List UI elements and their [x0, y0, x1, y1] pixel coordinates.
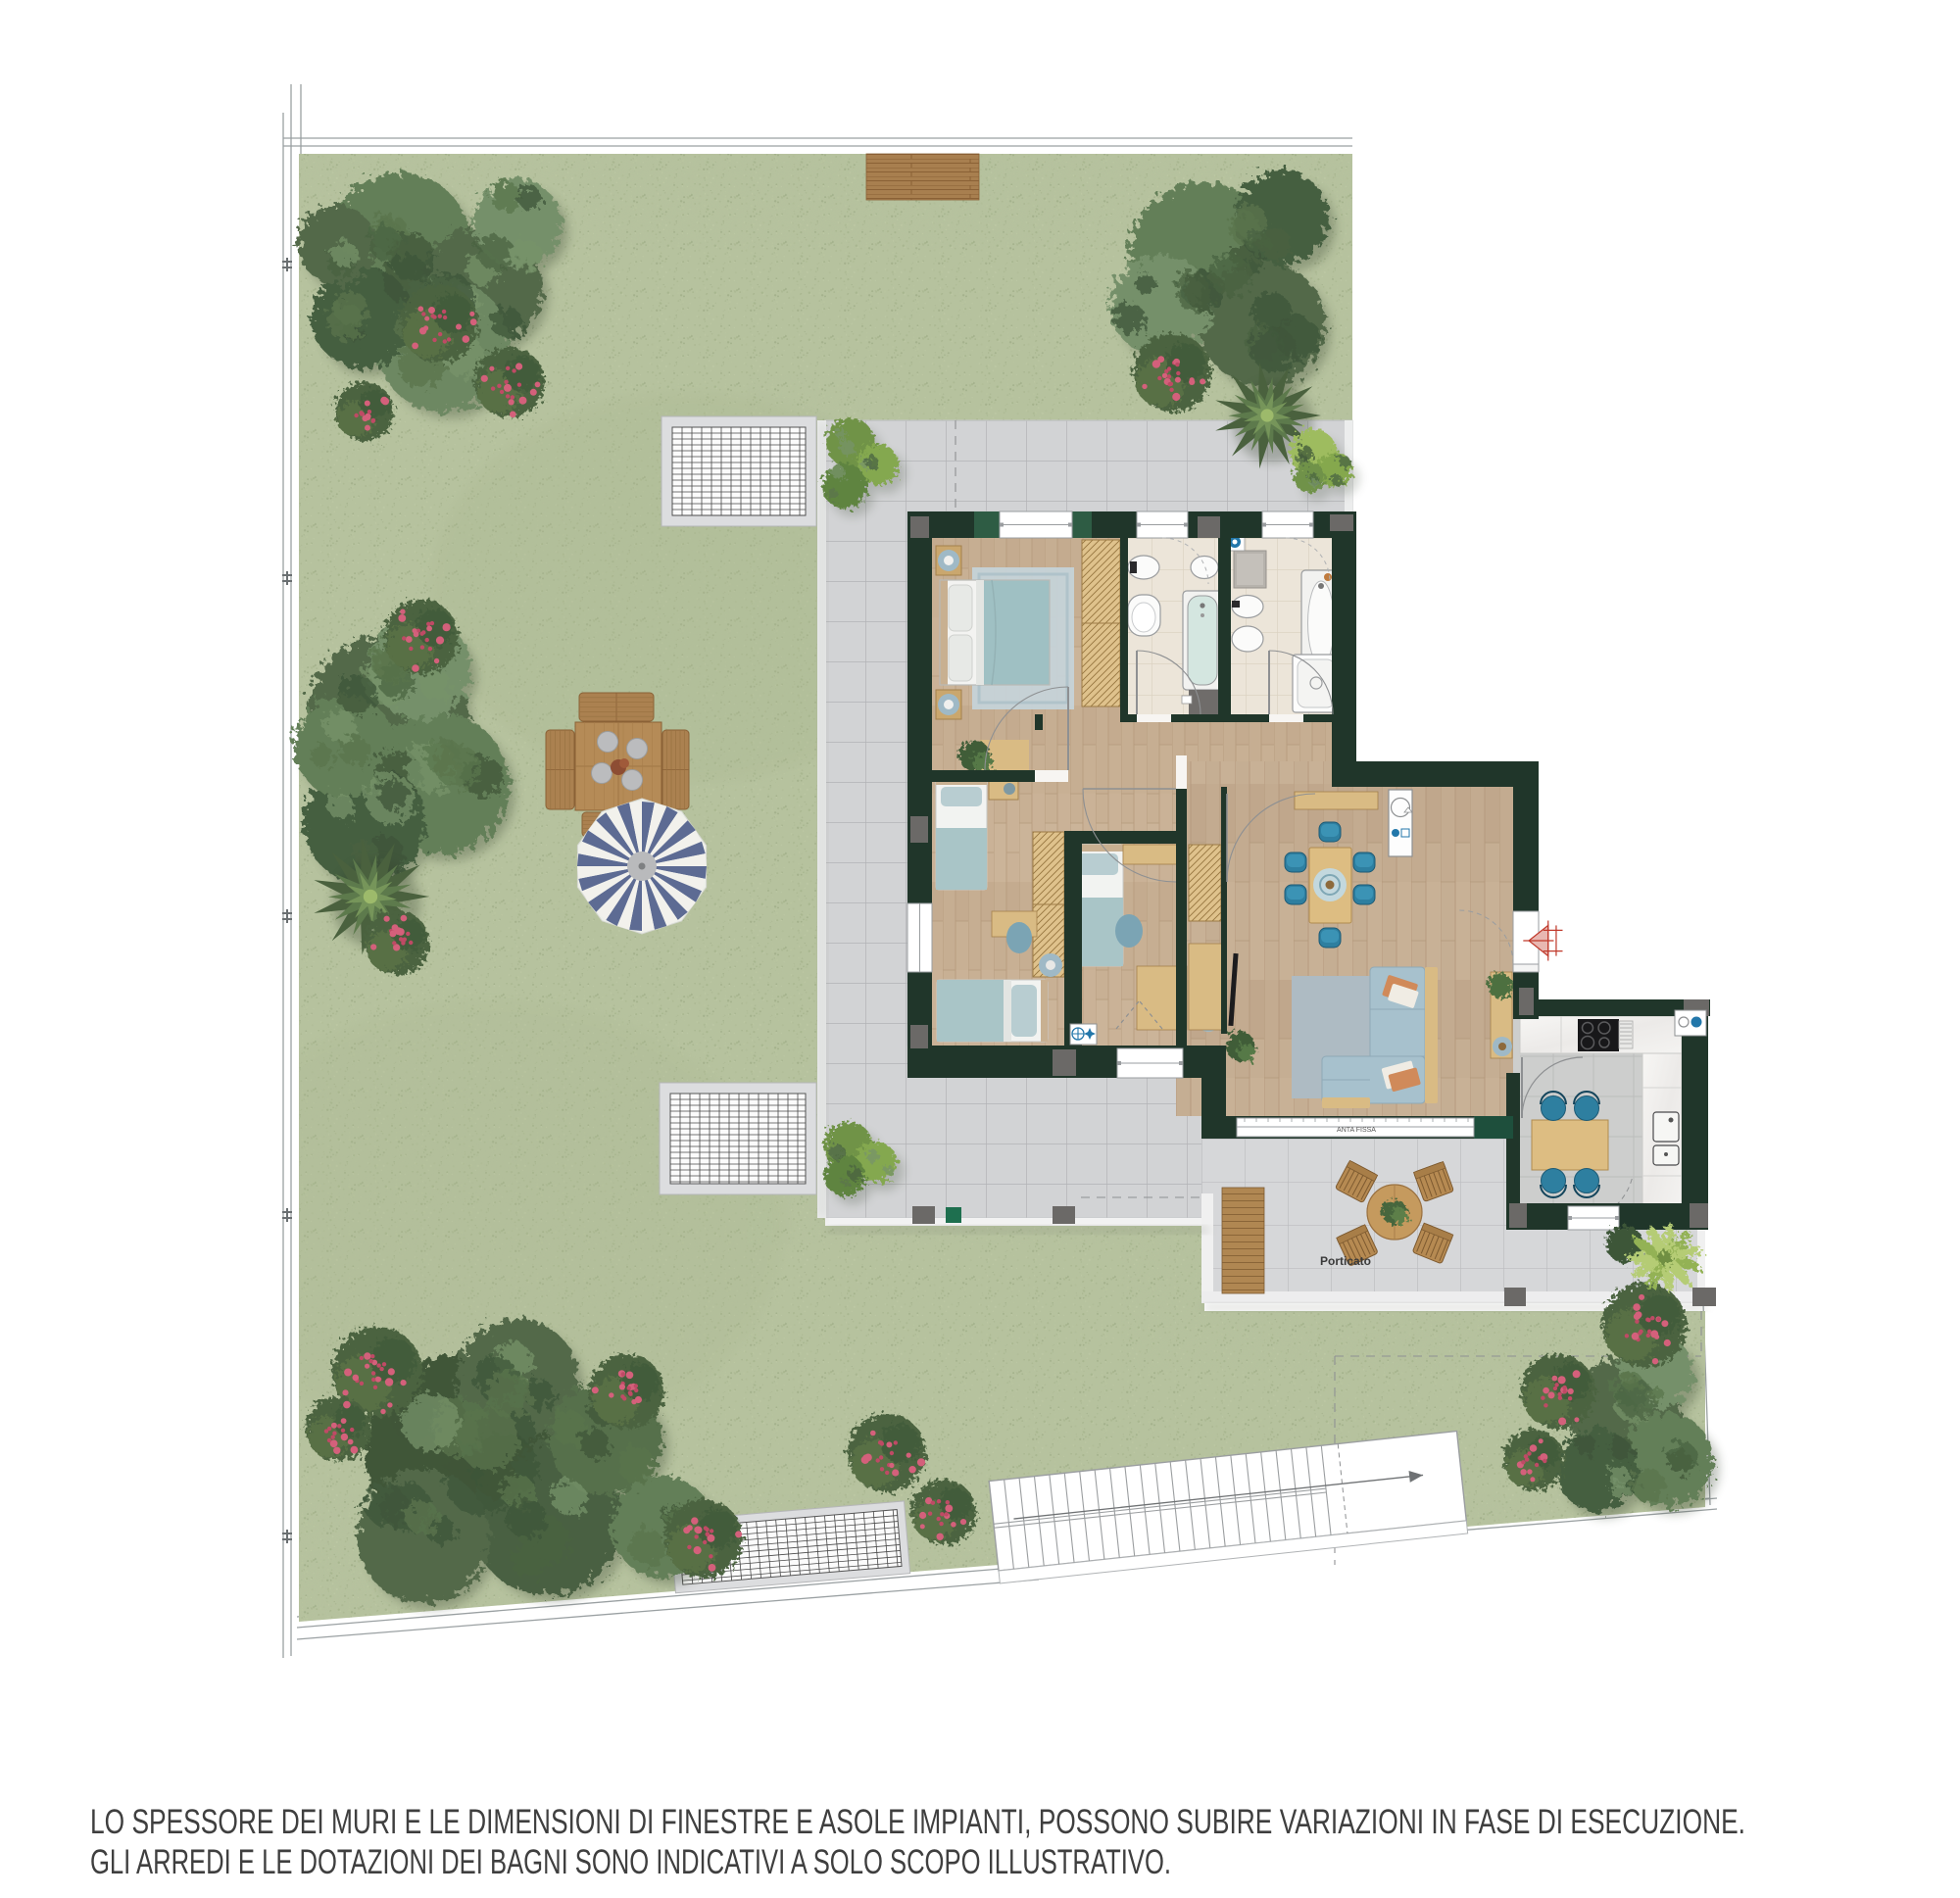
svg-text:Porticato: Porticato [1320, 1254, 1371, 1268]
svg-text:GLI ARREDI E LE DOTAZIONI DEI: GLI ARREDI E LE DOTAZIONI DEI BAGNI SONO… [90, 1843, 1171, 1881]
svg-text:LO SPESSORE DEI MURI E LE DIME: LO SPESSORE DEI MURI E LE DIMENSIONI DI … [90, 1803, 1745, 1841]
svg-text:ANTA FISSA: ANTA FISSA [1337, 1127, 1376, 1134]
